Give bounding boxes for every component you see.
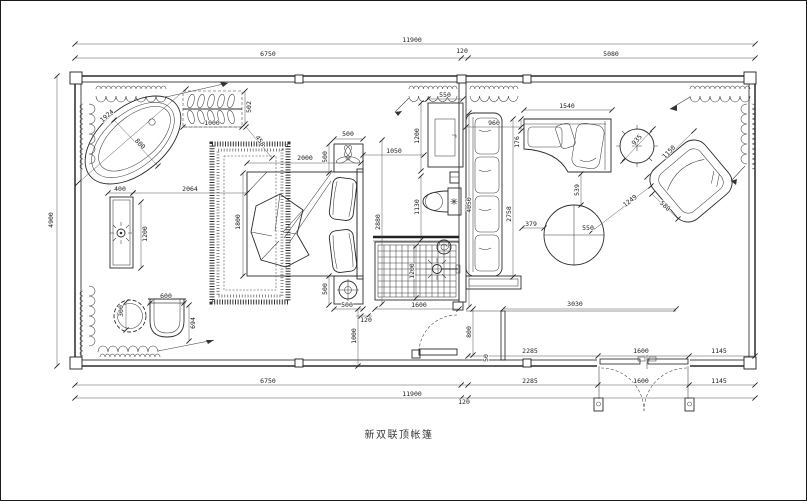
dim-label: 1000 [204, 119, 220, 127]
dim-label: 1145 [711, 347, 727, 355]
dim-label: 550 [439, 91, 451, 99]
dim-label: 500 [341, 301, 353, 309]
dim-label: 539 [573, 184, 581, 196]
dim-label: 1200 [141, 226, 149, 242]
dim-label: 1050 [386, 147, 402, 155]
dim-label: 120 [458, 398, 470, 406]
dim-label: 2000 [297, 154, 313, 162]
dim-label: 11900 [402, 390, 422, 398]
dim-label: 1130 [413, 199, 421, 215]
dim-label: 1600 [633, 377, 649, 385]
dim-label: 2758 [505, 206, 513, 222]
dim-label: 550 [582, 224, 594, 232]
floor-plan-page: 1190067501205080490022851600114567502285… [0, 0, 807, 501]
dim-label: 500 [321, 151, 329, 163]
dim-label: 379 [525, 220, 537, 228]
dim-label: 300 [117, 305, 125, 317]
dim-label: 1200 [408, 263, 416, 279]
dim-label: 6750 [260, 50, 276, 58]
dim-label: 694 [189, 317, 197, 329]
dim-label: 500 [342, 130, 354, 138]
coffee-table-round [544, 205, 604, 265]
dim-label: 1600 [633, 347, 649, 355]
dim-label: 11900 [402, 36, 422, 44]
dim-label: 120 [456, 47, 468, 55]
dim-label: 176 [513, 136, 521, 148]
dim-label: 120 [360, 316, 372, 324]
dim-label: 2285 [522, 377, 538, 385]
dim-label: 50 [482, 354, 490, 362]
dim-label: 1540 [559, 102, 575, 110]
drawing-title: 新双联顶帐篷 [365, 428, 434, 441]
dim-label: 1800 [234, 214, 242, 230]
dim-label: 1145 [711, 377, 727, 385]
dim-label: 1600 [411, 301, 427, 309]
dim-label: 5080 [603, 50, 619, 58]
dim-label: 500 [321, 283, 329, 295]
dim-label: 800 [465, 326, 473, 338]
dim-label: 2880 [374, 214, 382, 230]
dim-label: 3030 [567, 300, 583, 308]
dim-label: 2285 [522, 347, 538, 355]
dim-label: 1000 [350, 328, 358, 344]
dim-label: 4900 [47, 212, 55, 228]
dim-label: 2064 [182, 185, 198, 193]
dim-label: 400 [114, 185, 126, 193]
dim-label: 600 [160, 292, 172, 300]
dim-label: 960 [488, 119, 500, 127]
dim-label: 502 [245, 101, 253, 113]
dim-label: 1200 [413, 128, 421, 144]
dim-label: 6750 [260, 377, 276, 385]
dim-label: 4050 [465, 197, 473, 213]
floor-plan-drawing: 1190067501205080490022851600114567502285… [0, 0, 807, 501]
